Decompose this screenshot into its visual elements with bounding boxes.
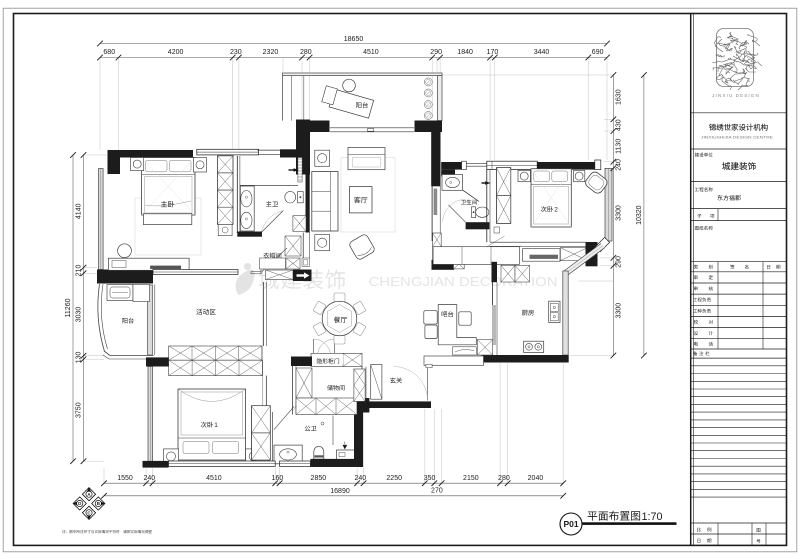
svg-text:160: 160	[272, 475, 284, 482]
svg-text:3750: 3750	[75, 402, 82, 418]
svg-text:1840: 1840	[457, 49, 473, 56]
svg-text:1:70: 1:70	[642, 511, 663, 523]
svg-text:1130: 1130	[616, 139, 623, 154]
svg-text:P01: P01	[563, 519, 578, 529]
svg-text:16890: 16890	[330, 488, 350, 495]
svg-text:430: 430	[616, 119, 623, 131]
svg-text:270: 270	[431, 487, 443, 494]
svg-text:1: 1	[214, 422, 218, 429]
svg-text:10320: 10320	[636, 205, 643, 225]
svg-text:280: 280	[300, 49, 312, 56]
svg-text:JINXIU DESIGN: JINXIU DESIGN	[712, 93, 760, 98]
svg-text:2850: 2850	[311, 475, 327, 482]
svg-text:230: 230	[230, 49, 242, 56]
svg-text:4510: 4510	[363, 49, 379, 56]
svg-text:130: 130	[75, 351, 82, 363]
svg-text:3300: 3300	[616, 303, 623, 319]
svg-text:3030: 3030	[75, 307, 82, 323]
svg-text:2150: 2150	[463, 475, 479, 482]
svg-text:170: 170	[487, 49, 499, 56]
svg-text:280: 280	[498, 475, 510, 482]
svg-text:240: 240	[355, 475, 367, 482]
svg-text:350: 350	[424, 475, 436, 482]
svg-text:210: 210	[75, 265, 82, 277]
svg-text:2: 2	[554, 207, 558, 214]
svg-text:3300: 3300	[616, 205, 623, 221]
svg-text:680: 680	[103, 49, 115, 56]
svg-text:18650: 18650	[344, 36, 364, 43]
svg-text:4140: 4140	[75, 203, 82, 219]
svg-text:3440: 3440	[534, 49, 550, 56]
svg-text:11260: 11260	[65, 298, 72, 317]
svg-text:690: 690	[592, 49, 604, 56]
svg-text:240: 240	[144, 475, 156, 482]
svg-text:4200: 4200	[168, 49, 184, 56]
svg-text:B: B	[97, 501, 100, 506]
svg-text:D: D	[78, 501, 81, 506]
svg-text:4510: 4510	[206, 475, 222, 482]
svg-text:1550: 1550	[117, 475, 133, 482]
svg-text:2320: 2320	[263, 49, 279, 56]
svg-text:1630: 1630	[616, 89, 623, 105]
svg-text:2040: 2040	[528, 475, 544, 482]
svg-text:2250: 2250	[386, 475, 402, 482]
svg-text:290: 290	[430, 49, 442, 56]
svg-text:JINXIUSHIJIA DESIGN CENTRE: JINXIUSHIJIA DESIGN CENTRE	[701, 134, 773, 139]
svg-text:290: 290	[616, 256, 623, 268]
svg-text:240: 240	[616, 159, 623, 171]
